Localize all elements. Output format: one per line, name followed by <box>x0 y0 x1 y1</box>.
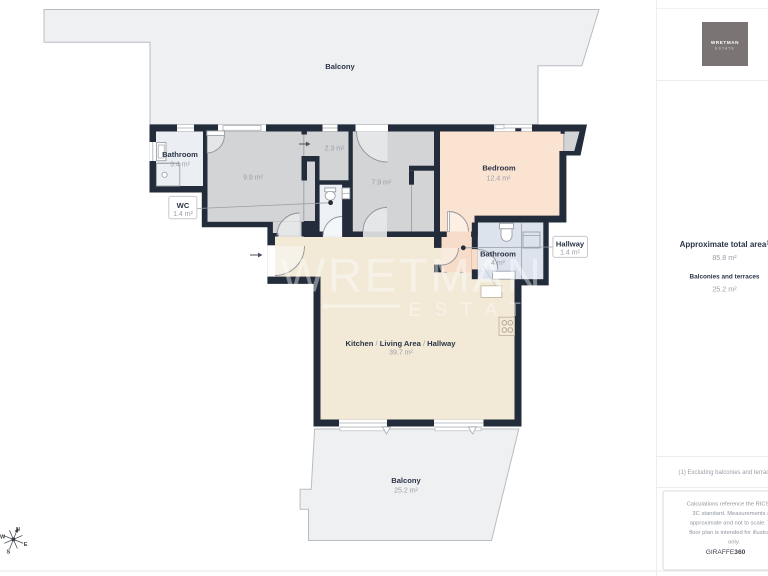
svg-text:Bathroom: Bathroom <box>162 150 198 159</box>
svg-text:ESTATE: ESTATE <box>715 47 735 51</box>
svg-text:85.8 m²: 85.8 m² <box>712 253 737 262</box>
svg-text:floor plan is intended for ill: floor plan is intended for illustration <box>689 530 768 536</box>
svg-text:7.9 m²: 7.9 m² <box>371 180 392 187</box>
svg-text:only.: only. <box>728 539 740 545</box>
svg-text:Balcony: Balcony <box>391 476 421 485</box>
svg-text:E: E <box>24 542 28 548</box>
svg-text:1.4 m²: 1.4 m² <box>173 211 194 218</box>
svg-text:3.4 m²: 3.4 m² <box>170 162 191 169</box>
svg-text:4 m²: 4 m² <box>491 260 506 267</box>
svg-text:Balconies and terraces: Balconies and terraces <box>690 274 760 281</box>
svg-text:GIRAFFE360: GIRAFFE360 <box>706 549 746 556</box>
svg-text:Balcony: Balcony <box>325 62 355 71</box>
svg-text:(1) Excluding balconies and te: (1) Excluding balconies and terraces <box>679 470 768 476</box>
svg-text:W: W <box>0 535 6 541</box>
svg-text:1.4 m²: 1.4 m² <box>560 250 581 257</box>
svg-text:N: N <box>16 527 20 533</box>
svg-text:Approximate total area1: Approximate total area1 <box>680 240 768 249</box>
svg-text:Kitchen / Living Area / Hallwa: Kitchen / Living Area / Hallway <box>346 339 457 348</box>
svg-text:39.7 m²: 39.7 m² <box>389 349 413 356</box>
svg-text:9.9 m²: 9.9 m² <box>243 175 264 182</box>
svg-text:approximate and not to scale.: approximate and not to scale. This <box>690 520 768 526</box>
svg-text:WRETMAN: WRETMAN <box>711 40 739 45</box>
svg-text:25.2 m²: 25.2 m² <box>394 488 418 495</box>
svg-text:12.4 m²: 12.4 m² <box>487 176 511 183</box>
svg-text:2.3 m²: 2.3 m² <box>325 146 346 153</box>
svg-text:Calculations reference the RIC: Calculations reference the RICS IPM <box>687 501 768 507</box>
svg-text:Bedroom: Bedroom <box>482 164 516 173</box>
svg-text:S: S <box>7 550 11 556</box>
svg-text:ESTATE: ESTATE <box>408 300 560 321</box>
svg-text:3C standard. Measurements are: 3C standard. Measurements are <box>692 511 768 517</box>
svg-text:WC: WC <box>177 201 190 210</box>
svg-text:Bathroom: Bathroom <box>480 249 516 258</box>
svg-text:25.2 m²: 25.2 m² <box>712 285 737 294</box>
svg-text:Hallway: Hallway <box>556 240 585 249</box>
